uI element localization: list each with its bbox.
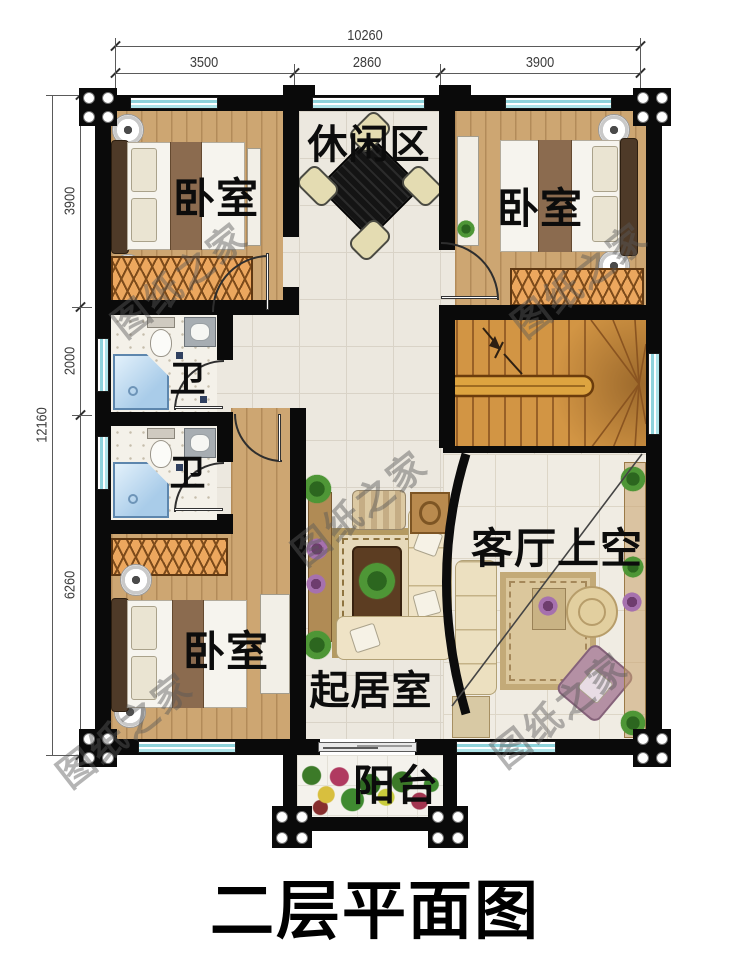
washbasin (184, 317, 216, 347)
window (648, 353, 660, 435)
room-label-bedroom-top-right: 卧室 (497, 175, 583, 236)
column-dot (656, 111, 668, 123)
sliding-door-leaf (357, 745, 412, 747)
column-dot (102, 92, 114, 104)
door-leaf (266, 253, 269, 310)
door-leaf (278, 414, 281, 462)
dimension-extension (640, 38, 641, 90)
wall-segment (439, 320, 455, 448)
dimension-line-left-total (52, 95, 53, 755)
window (312, 97, 425, 109)
column (633, 88, 671, 126)
room-label-balcony: 阳台 (353, 752, 439, 813)
room-label-bath-lower: 卫 (169, 444, 206, 496)
dimension-line-left-segments (80, 95, 81, 755)
page-title: 二层平面图 (210, 860, 540, 952)
column-dot (452, 811, 464, 823)
balcony-column (272, 806, 312, 848)
wall-segment (283, 111, 299, 237)
floor-plan-sheet: 10260 3500 2860 3900 12160 3900 2000 626… (0, 0, 750, 960)
column-dot (656, 752, 668, 764)
staircase-treads (443, 320, 646, 448)
column-stub (283, 85, 315, 97)
door-leaf (174, 406, 223, 409)
dimension-extension (115, 38, 116, 90)
column-dot (296, 811, 308, 823)
wall-segment (290, 408, 306, 739)
door-leaf (441, 296, 498, 299)
window (505, 97, 612, 109)
column-dot (656, 92, 668, 104)
window (130, 97, 218, 109)
window (97, 436, 109, 490)
staircase (443, 320, 646, 448)
column-dot (656, 733, 668, 745)
column-dot (432, 832, 444, 844)
column-stub (439, 85, 471, 97)
pillow (131, 198, 157, 242)
column-dot (102, 111, 114, 123)
wall-segment (217, 412, 233, 462)
wall-segment (283, 287, 299, 315)
wall-segment (217, 315, 233, 360)
column (633, 729, 671, 767)
column-dot (83, 92, 95, 104)
sliding-door-leaf (323, 747, 378, 749)
shower-drain (128, 494, 138, 504)
dimension-extension (72, 307, 92, 308)
column-dot (452, 832, 464, 844)
dimension-label-left-3: 6260 (62, 571, 79, 599)
column-dot (637, 733, 649, 745)
dimension-line-top-total (115, 46, 640, 47)
column (79, 88, 117, 126)
dimension-label-left-total: 12160 (34, 407, 51, 442)
door-leaf (174, 508, 223, 511)
void-railing-arc (447, 454, 467, 714)
dimension-label-top-1: 3500 (190, 54, 218, 71)
room-label-bedroom-bottom-left: 卧室 (183, 618, 269, 679)
window (138, 741, 236, 753)
room-label-leisure: 休闲区 (308, 112, 431, 170)
dimension-line-top-segments (115, 73, 640, 74)
shower-drain (128, 386, 138, 396)
room-label-living-void: 客厅上空 (471, 515, 643, 576)
wall-segment (439, 111, 455, 250)
column-dot (637, 752, 649, 764)
pillow (131, 606, 157, 650)
column-dot (637, 111, 649, 123)
bedside-lamp (120, 564, 152, 596)
toilet-tank (147, 428, 175, 439)
column-dot (296, 832, 308, 844)
dimension-label-top-2: 2860 (353, 54, 381, 71)
room-label-sitting: 起居室 (310, 658, 433, 716)
column-dot (83, 111, 95, 123)
dimension-label-top-3: 3900 (526, 54, 554, 71)
sliding-door (318, 742, 417, 752)
dimension-label-top-total: 10260 (347, 27, 382, 44)
pillow (592, 146, 618, 192)
dimension-label-left-1: 3900 (62, 187, 79, 215)
wall-segment (111, 412, 217, 426)
washbasin-bowl (190, 323, 210, 341)
potted-plant (457, 220, 475, 238)
pillow (131, 148, 157, 192)
wall-segment (95, 520, 231, 534)
potted-plant (302, 630, 332, 660)
room-label-bedroom-top-left: 卧室 (173, 165, 259, 226)
flower-pot (306, 574, 326, 594)
window (97, 338, 109, 392)
room-label-bath-upper: 卫 (169, 350, 206, 402)
wall-segment (95, 95, 111, 755)
column-dot (637, 92, 649, 104)
column-dot (276, 832, 288, 844)
dimension-label-left-2: 2000 (62, 347, 79, 375)
table-plant (358, 562, 396, 600)
dimension-extension (72, 415, 92, 416)
column-dot (276, 811, 288, 823)
